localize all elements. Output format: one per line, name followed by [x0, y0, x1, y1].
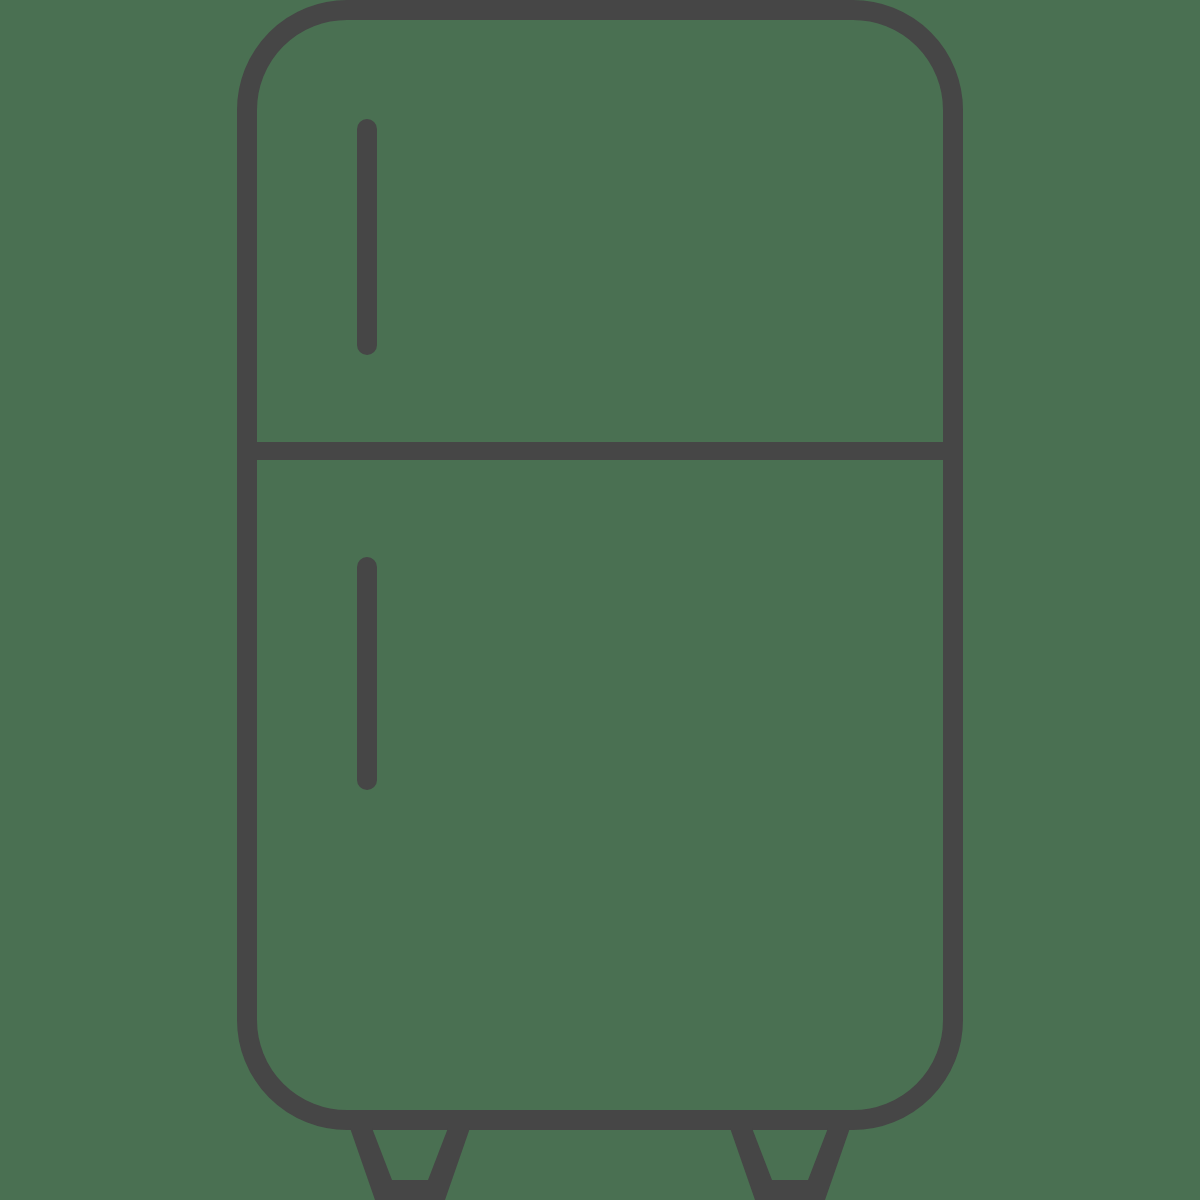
refrigerator-icon: [0, 0, 1200, 1200]
right-foot: [730, 1128, 850, 1200]
fridge-body-outline: [247, 10, 953, 1120]
icon-canvas: [0, 0, 1200, 1200]
left-foot: [350, 1128, 470, 1200]
